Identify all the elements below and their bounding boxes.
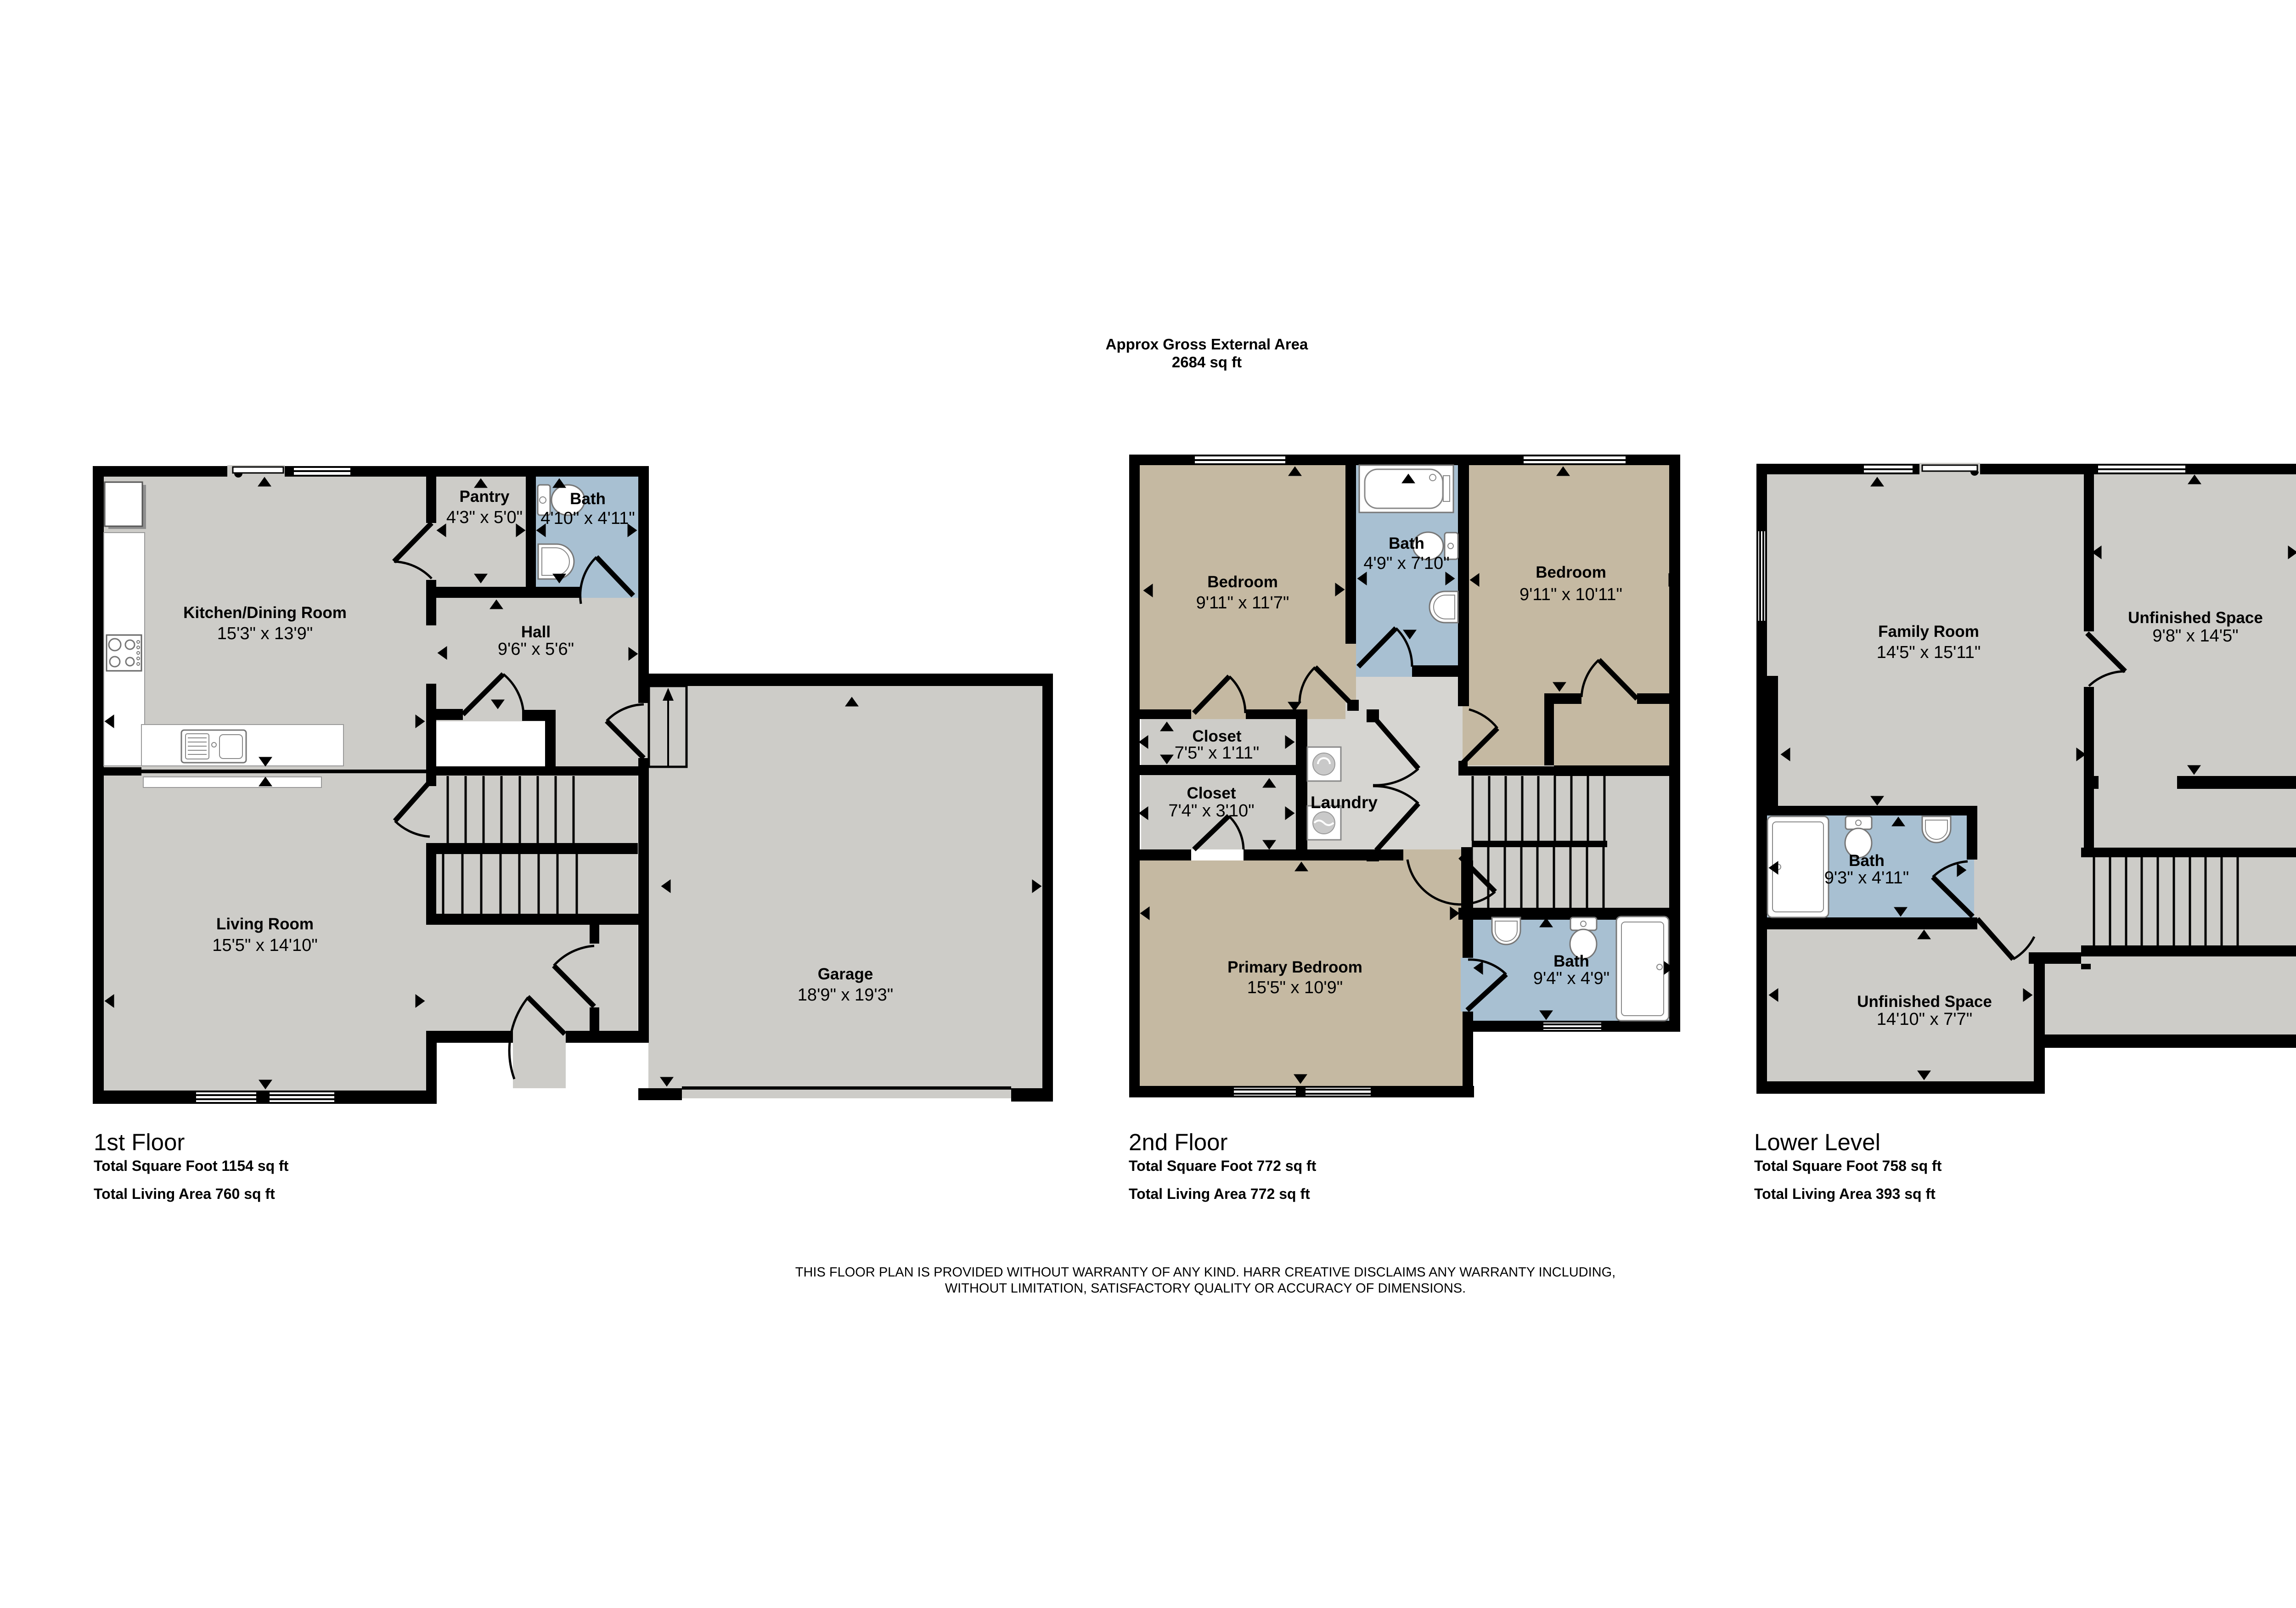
svg-text:4'3" x 5'0": 4'3" x 5'0" bbox=[446, 508, 523, 527]
svg-text:THIS FLOOR PLAN IS PROVIDED WI: THIS FLOOR PLAN IS PROVIDED WITHOUT WARR… bbox=[795, 1265, 1615, 1280]
svg-text:Total Square Foot 772 sq ft: Total Square Foot 772 sq ft bbox=[1129, 1158, 1317, 1174]
svg-text:4'10" x 4'11": 4'10" x 4'11" bbox=[540, 509, 635, 528]
svg-text:4'9" x 7'10": 4'9" x 7'10" bbox=[1363, 554, 1449, 573]
svg-text:9'4" x 4'9": 9'4" x 4'9" bbox=[1533, 969, 1609, 988]
svg-text:Lower Level: Lower Level bbox=[1754, 1129, 1880, 1155]
svg-text:Bath: Bath bbox=[1553, 952, 1589, 970]
svg-text:Closet: Closet bbox=[1187, 784, 1236, 802]
svg-text:15'5" x 14'10": 15'5" x 14'10" bbox=[212, 936, 318, 955]
svg-text:Hall: Hall bbox=[521, 623, 551, 641]
svg-text:Pantry: Pantry bbox=[460, 488, 510, 506]
svg-text:Bedroom: Bedroom bbox=[1207, 573, 1278, 591]
svg-text:Primary Bedroom: Primary Bedroom bbox=[1227, 958, 1362, 976]
svg-text:Garage: Garage bbox=[818, 965, 873, 983]
svg-text:Laundry: Laundry bbox=[1311, 793, 1378, 812]
svg-text:Living Room: Living Room bbox=[216, 915, 314, 933]
svg-text:1st Floor: 1st Floor bbox=[94, 1129, 185, 1155]
svg-text:Bath: Bath bbox=[570, 490, 606, 508]
svg-text:Unfinished Space: Unfinished Space bbox=[2128, 609, 2263, 627]
svg-text:Total Living Area 760 sq ft: Total Living Area 760 sq ft bbox=[94, 1186, 275, 1202]
svg-text:Bath: Bath bbox=[1389, 534, 1424, 552]
svg-text:Kitchen/Dining Room: Kitchen/Dining Room bbox=[183, 604, 347, 622]
svg-text:2nd Floor: 2nd Floor bbox=[1129, 1129, 1227, 1155]
svg-text:Bedroom: Bedroom bbox=[1536, 563, 1606, 581]
svg-text:Family Room: Family Room bbox=[1878, 623, 1979, 641]
svg-text:Bath: Bath bbox=[1849, 852, 1885, 870]
svg-text:7'5" x 1'11": 7'5" x 1'11" bbox=[1175, 743, 1259, 763]
svg-text:9'11" x 11'7": 9'11" x 11'7" bbox=[1196, 593, 1289, 613]
svg-text:Unfinished Space: Unfinished Space bbox=[1857, 993, 1992, 1011]
svg-text:Total Living Area 393 sq ft: Total Living Area 393 sq ft bbox=[1754, 1186, 1936, 1202]
svg-text:9'8" x 14'5": 9'8" x 14'5" bbox=[2152, 626, 2238, 646]
svg-text:WITHOUT LIMITATION, SATISFACTO: WITHOUT LIMITATION, SATISFACTORY QUALITY… bbox=[945, 1281, 1466, 1296]
svg-text:Closet: Closet bbox=[1193, 727, 1242, 745]
svg-text:9'6" x 5'6": 9'6" x 5'6" bbox=[498, 640, 574, 659]
svg-text:15'3" x 13'9": 15'3" x 13'9" bbox=[217, 624, 313, 643]
svg-text:Total Square Foot 758 sq ft: Total Square Foot 758 sq ft bbox=[1754, 1158, 1942, 1174]
svg-text:2684 sq ft: 2684 sq ft bbox=[1172, 354, 1242, 371]
svg-text:Total Living Area 772 sq ft: Total Living Area 772 sq ft bbox=[1129, 1186, 1310, 1202]
svg-text:18'9" x 19'3": 18'9" x 19'3" bbox=[798, 985, 893, 1005]
svg-text:15'5" x 10'9": 15'5" x 10'9" bbox=[1247, 978, 1343, 997]
svg-text:Total Square Foot 1154 sq ft: Total Square Foot 1154 sq ft bbox=[94, 1158, 289, 1174]
svg-text:14'5" x 15'11": 14'5" x 15'11" bbox=[1877, 643, 1981, 662]
svg-text:9'11" x 10'11": 9'11" x 10'11" bbox=[1519, 585, 1622, 604]
svg-text:9'3" x 4'11": 9'3" x 4'11" bbox=[1824, 868, 1909, 888]
svg-text:7'4" x 3'10": 7'4" x 3'10" bbox=[1168, 801, 1254, 821]
svg-text:Approx Gross External Area: Approx Gross External Area bbox=[1106, 336, 1308, 353]
svg-text:14'10" x 7'7": 14'10" x 7'7" bbox=[1877, 1010, 1972, 1029]
